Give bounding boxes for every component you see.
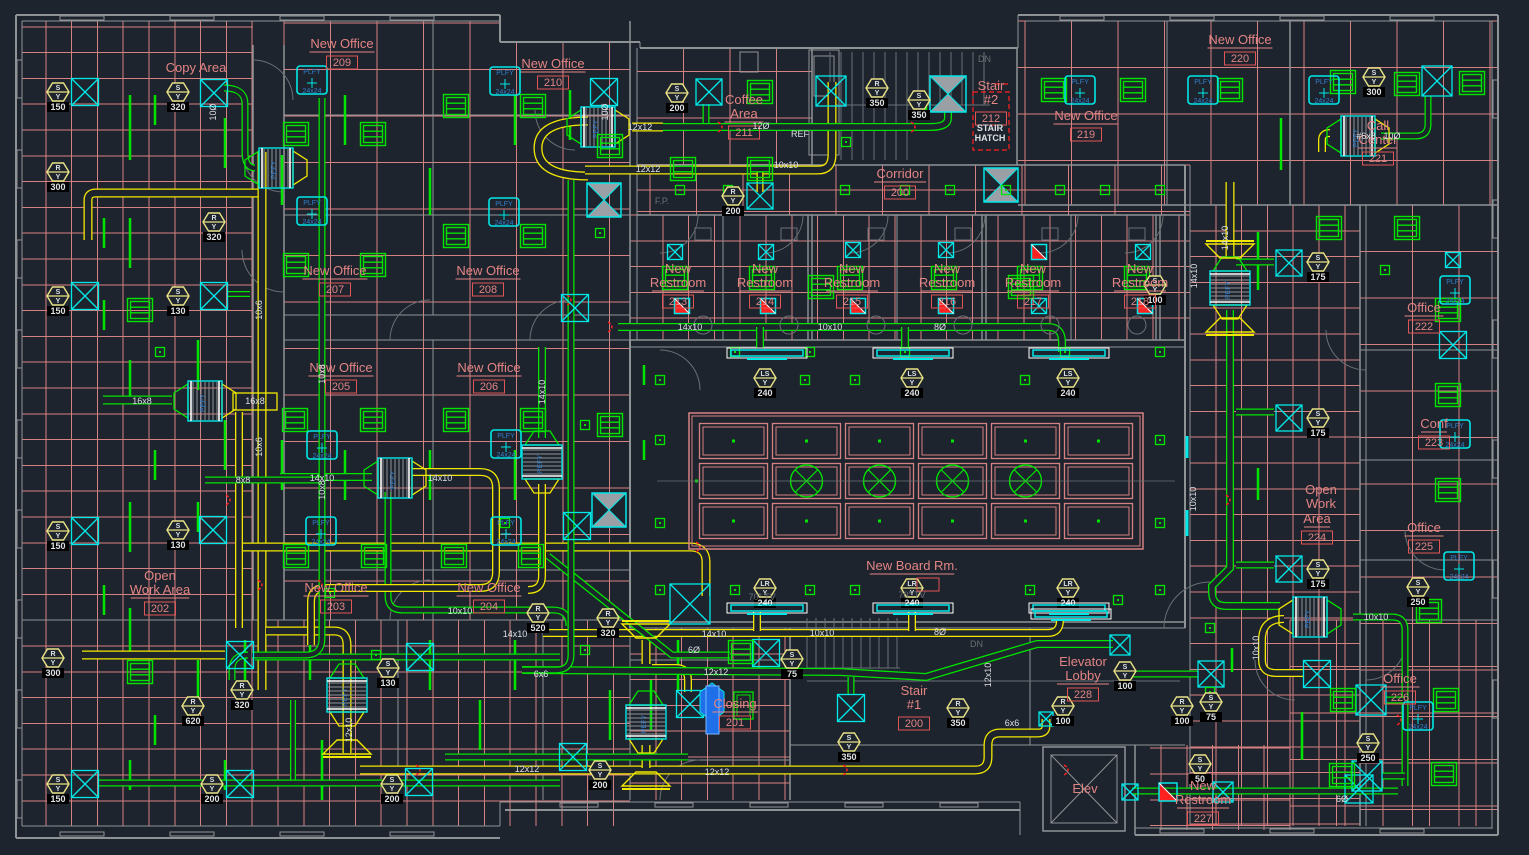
svg-text:14x10: 14x10 [678,322,703,332]
svg-text:LS: LS [908,371,917,378]
svg-text:24x24: 24x24 [1445,442,1464,449]
svg-text:New Office: New Office [310,36,373,51]
svg-text:75: 75 [787,669,797,679]
svg-text:S: S [1209,695,1214,702]
svg-text:200: 200 [384,794,399,804]
svg-text:Y: Y [956,710,961,717]
svg-text:Y: Y [1123,673,1128,680]
svg-text:New: New [839,261,866,276]
svg-text:8Ø: 8Ø [934,627,946,637]
svg-text:Y: Y [176,94,181,101]
svg-text:24x24: 24x24 [1445,298,1464,305]
svg-text:12x10: 12x10 [983,663,993,688]
svg-text:Open: Open [1305,482,1337,497]
svg-text:R: R [50,651,55,658]
svg-text:Y: Y [675,95,680,102]
svg-text:R: R [730,189,735,196]
svg-text:Y: Y [390,786,395,793]
svg-text:210: 210 [544,77,562,89]
svg-text:LR: LR [760,581,769,588]
svg-text:New Board Rm.: New Board Rm. [866,558,958,573]
svg-text:250: 250 [1360,753,1375,763]
svg-text:6Ø: 6Ø [688,645,700,655]
svg-text:New: New [1020,261,1047,276]
svg-text:PLFY: PLFY [1446,279,1464,286]
svg-text:Y: Y [606,620,611,627]
svg-text:24x24: 24x24 [311,539,330,546]
svg-text:12x12: 12x12 [515,764,540,774]
svg-text:10x6: 10x6 [254,300,264,320]
svg-text:New Office: New Office [457,360,520,375]
svg-text:S: S [1316,562,1321,569]
svg-text:New: New [934,261,961,276]
svg-text:216: 216 [938,296,956,308]
svg-text:Stair: Stair [901,683,928,698]
svg-text:Corridor: Corridor [877,166,925,181]
svg-text:200: 200 [905,718,923,730]
svg-text:14x10: 14x10 [428,473,453,483]
svg-text:New: New [752,261,779,276]
svg-text:Y: Y [56,533,61,540]
svg-text:Restroom: Restroom [1112,275,1168,290]
svg-text:#6x8: #6x8 [1356,131,1376,141]
svg-text:75: 75 [1206,712,1216,722]
svg-text:24x24: 24x24 [496,452,515,459]
svg-text:211: 211 [735,127,753,139]
svg-text:Restroom: Restroom [737,275,793,290]
svg-text:Y: Y [847,744,852,751]
svg-text:New: New [665,261,692,276]
svg-text:200: 200 [592,780,607,790]
svg-text:620: 620 [185,716,200,726]
svg-text:S: S [1416,580,1421,587]
svg-text:223: 223 [1425,437,1443,449]
svg-text:Y: Y [1061,708,1066,715]
svg-text:S: S [917,93,922,100]
svg-text:240: 240 [904,388,919,398]
svg-text:10Ø: 10Ø [600,103,610,120]
svg-text:10x6: 10x6 [254,437,264,457]
svg-text:S: S [1316,255,1321,262]
svg-text:206: 206 [480,381,498,393]
svg-text:10x10: 10x10 [1251,636,1261,661]
svg-text:Area: Area [730,106,758,121]
svg-text:Elev: Elev [1072,781,1098,796]
svg-text:S: S [790,652,795,659]
svg-text:Y: Y [56,298,61,305]
svg-text:Y: Y [1316,264,1321,271]
svg-text:PLFY: PLFY [1315,79,1333,86]
svg-text:Y: Y [731,198,736,205]
svg-text:24x24: 24x24 [494,220,513,227]
svg-text:203: 203 [327,601,345,613]
svg-text:320: 320 [234,700,249,710]
svg-text:LS: LS [761,371,770,378]
svg-text:R: R [211,215,216,222]
svg-text:12Ø: 12Ø [752,121,769,131]
svg-text:S: S [56,289,61,296]
svg-text:S: S [675,86,680,93]
svg-text:S: S [56,524,61,531]
svg-text:PLFY: PLFY [312,520,330,527]
svg-text:S: S [176,289,181,296]
svg-text:Coffee: Coffee [725,92,763,107]
svg-text:Y: Y [598,772,603,779]
svg-text:Y: Y [176,532,181,539]
svg-text:New Office: New Office [456,263,519,278]
svg-text:70″ TV: 70″ TV [748,592,775,602]
svg-text:R: R [239,683,244,690]
svg-text:LS: LS [1064,371,1073,378]
svg-text:24x24: 24x24 [302,219,321,226]
svg-text:Y: Y [191,708,196,715]
svg-text:PLFY: PLFY [496,70,514,77]
svg-text:PLFY: PLFY [497,433,515,440]
svg-text:24x24: 24x24 [312,453,331,460]
svg-text:New Office: New Office [1054,108,1117,123]
svg-text:LR: LR [907,581,916,588]
svg-text:24x24: 24x24 [496,539,515,546]
svg-text:R: R [535,606,540,613]
svg-text:12x12: 12x12 [636,164,661,174]
svg-text:Restroom: Restroom [650,275,706,290]
svg-text:320: 320 [170,102,185,112]
svg-text:205: 205 [332,381,350,393]
svg-text:New Office: New Office [304,580,367,595]
svg-text:DN: DN [978,54,991,64]
svg-text:300: 300 [1366,87,1381,97]
svg-text:PLFY: PLFY [303,69,321,76]
svg-text:PEFY: PEFY [200,394,207,413]
svg-text:350: 350 [869,98,884,108]
svg-text:REF: REF [791,129,810,139]
svg-text:PEFY: PEFY [641,715,648,734]
svg-text:100: 100 [1117,681,1132,691]
svg-text:Lobby: Lobby [1065,668,1101,683]
svg-text:14x10: 14x10 [1220,226,1230,251]
svg-text:220: 220 [1231,53,1249,65]
svg-text:130: 130 [170,540,185,550]
svg-text:209: 209 [333,57,351,69]
svg-text:6x6: 6x6 [1005,718,1020,728]
svg-text:PLFY: PLFY [1071,79,1089,86]
svg-text:PLFY: PLFY [1446,423,1464,430]
svg-text:10Ø: 10Ø [1383,131,1400,141]
svg-text:24x24: 24x24 [1408,724,1427,731]
svg-text:Y: Y [240,692,245,699]
svg-text:10x10: 10x10 [774,160,799,170]
svg-text:PEFY: PEFY [390,471,397,490]
svg-text:250: 250 [1410,597,1425,607]
svg-text:24x24: 24x24 [1449,574,1468,581]
svg-text:8Ø: 8Ø [934,322,946,332]
svg-text:175: 175 [1310,428,1325,438]
svg-text:Office: Office [1407,520,1441,535]
svg-text:Work Area: Work Area [130,582,191,597]
svg-text:R: R [1060,699,1065,706]
svg-text:R: R [874,81,879,88]
svg-text:16x8: 16x8 [245,396,265,406]
svg-text:PLFY: PLFY [1409,705,1427,712]
svg-text:Closing: Closing [713,696,756,711]
svg-text:12x10: 12x10 [344,718,354,743]
svg-text:R: R [190,699,195,706]
svg-text:175: 175 [1310,272,1325,282]
svg-text:Work: Work [1306,496,1337,511]
svg-text:R: R [605,611,610,618]
svg-text:Y: Y [212,224,217,231]
svg-text:Y: Y [1366,745,1371,752]
svg-text:10x10: 10x10 [1188,487,1198,512]
svg-text:224: 224 [1308,532,1326,544]
svg-text:10Ø: 10Ø [208,103,218,120]
svg-text:14x10: 14x10 [702,629,727,639]
svg-text:Elevator: Elevator [1059,654,1107,669]
svg-text:10x10: 10x10 [448,606,473,616]
svg-text:Y: Y [1198,766,1203,773]
svg-text:24x24: 24x24 [495,89,514,96]
svg-text:PLFY: PLFY [303,200,321,207]
svg-text:New Office: New Office [303,263,366,278]
svg-text:8x8: 8x8 [236,475,251,485]
svg-text:150: 150 [50,102,65,112]
svg-text:10x10: 10x10 [818,322,843,332]
svg-text:PEFY: PEFY [537,455,544,474]
svg-text:222: 222 [1415,321,1433,333]
svg-text:Y: Y [56,174,61,181]
svg-text:Open: Open [144,568,176,583]
svg-text:14x10: 14x10 [537,380,547,405]
svg-text:10x10: 10x10 [810,628,835,638]
svg-text:200: 200 [725,206,740,216]
svg-text:14x10: 14x10 [503,629,528,639]
svg-text:#1: #1 [907,697,921,712]
svg-text:225: 225 [1415,541,1433,553]
svg-text:520: 520 [530,623,545,633]
svg-text:New: New [1127,261,1154,276]
svg-text:213: 213 [669,296,687,308]
svg-text:24x24: 24x24 [302,88,321,95]
svg-text:F.P.: F.P. [655,196,669,206]
svg-text:PLFY: PLFY [1194,79,1212,86]
svg-text:6Ø: 6Ø [1336,794,1348,804]
svg-text:300: 300 [45,668,60,678]
svg-text:#2: #2 [984,92,998,107]
svg-text:S: S [386,661,391,668]
svg-text:14x10: 14x10 [1189,264,1199,289]
svg-text:214: 214 [756,296,774,308]
svg-text:S: S [1316,411,1321,418]
svg-text:S: S [176,523,181,530]
svg-text:208: 208 [479,284,497,296]
svg-text:S: S [1372,70,1377,77]
svg-text:PEFY: PEFY [1225,281,1232,300]
svg-text:PEFY: PEFY [271,161,278,180]
svg-text:Office: Office [1407,300,1441,315]
svg-text:S: S [56,85,61,92]
svg-text:New Office: New Office [1208,32,1271,47]
svg-text:215: 215 [843,296,861,308]
svg-text:S: S [56,777,61,784]
svg-text:Restroom: Restroom [1175,792,1231,807]
svg-text:PLFY: PLFY [497,520,515,527]
svg-text:Area: Area [1303,511,1331,526]
svg-text:12x12: 12x12 [705,767,730,777]
svg-text:240: 240 [757,388,772,398]
svg-text:228: 228 [1074,689,1092,701]
svg-text:R: R [1179,699,1184,706]
svg-text:Y: Y [386,670,391,677]
svg-text:PLFY: PLFY [495,201,513,208]
svg-text:10x8: 10x8 [317,364,327,384]
svg-text:Office: Office [1383,671,1417,686]
svg-text:200: 200 [891,187,909,199]
svg-text:S: S [598,763,603,770]
svg-text:10x8: 10x8 [317,480,327,500]
svg-text:S: S [1123,664,1128,671]
svg-text:S: S [390,777,395,784]
svg-text:350: 350 [841,752,856,762]
svg-text:Restroom: Restroom [824,275,880,290]
svg-text:Y: Y [1066,590,1071,597]
svg-text:Y: Y [51,660,56,667]
svg-text:12x12: 12x12 [628,122,653,132]
svg-text:Y: Y [1372,79,1377,86]
svg-text:Restroom: Restroom [919,275,975,290]
svg-text:150: 150 [50,541,65,551]
svg-text:PLFY: PLFY [313,434,331,441]
svg-text:Y: Y [56,786,61,793]
svg-text:320: 320 [206,232,221,242]
svg-text:S: S [847,735,852,742]
svg-text:Copy Area: Copy Area [166,60,227,75]
svg-text:150: 150 [50,306,65,316]
svg-text:Y: Y [536,615,541,622]
svg-text:Y: Y [763,380,768,387]
svg-text:240: 240 [1060,388,1075,398]
svg-text:226: 226 [1391,692,1409,704]
svg-text:PEFY: PEFY [1305,610,1312,629]
svg-text:HATCH: HATCH [975,133,1006,143]
svg-text:24x24: 24x24 [1070,98,1089,105]
svg-text:Y: Y [917,102,922,109]
svg-text:350: 350 [911,110,926,120]
svg-text:Y: Y [1209,704,1214,711]
svg-text:150: 150 [50,794,65,804]
svg-text:Y: Y [56,94,61,101]
svg-text:New Office: New Office [457,580,520,595]
svg-text:217: 217 [1024,296,1042,308]
svg-text:R: R [55,165,60,172]
svg-text:Y: Y [1316,571,1321,578]
svg-text:PEFY: PEFY [342,688,349,707]
svg-text:S: S [176,85,181,92]
svg-text:6x6: 6x6 [534,669,549,679]
svg-text:100: 100 [1174,716,1189,726]
svg-text:24x24: 24x24 [1314,98,1333,105]
svg-text:Restroom: Restroom [1005,275,1061,290]
svg-text:LR: LR [1063,581,1072,588]
svg-text:Y: Y [176,298,181,305]
svg-text:New: New [1190,778,1217,793]
svg-text:S: S [210,777,215,784]
svg-text:Stair: Stair [978,78,1005,93]
svg-text:Y: Y [875,90,880,97]
svg-text:227: 227 [1194,813,1212,825]
svg-text:Y: Y [210,786,215,793]
svg-text:Y: Y [1416,589,1421,596]
svg-text:100: 100 [1055,716,1070,726]
svg-text:207: 207 [326,284,344,296]
svg-text:70″ TV: 70″ TV [898,590,925,600]
svg-text:16x8: 16x8 [132,396,152,406]
svg-text:S: S [1366,736,1371,743]
svg-text:221: 221 [1369,153,1387,165]
svg-text:12x12: 12x12 [704,667,729,677]
svg-text:175: 175 [1310,579,1325,589]
svg-text:219: 219 [1077,129,1095,141]
svg-text:200: 200 [204,794,219,804]
svg-text:202: 202 [151,603,169,615]
svg-text:320: 320 [600,628,615,638]
svg-text:R: R [955,701,960,708]
svg-text:24x24: 24x24 [1193,98,1212,105]
svg-text:DN: DN [970,639,983,649]
svg-text:204: 204 [480,601,498,613]
svg-text:Y: Y [1066,380,1071,387]
svg-text:200: 200 [669,103,684,113]
svg-text:218: 218 [1131,296,1149,308]
svg-text:PEFY: PEFY [593,120,600,139]
svg-text:10x10: 10x10 [1364,612,1389,622]
svg-text:STAIR: STAIR [977,123,1004,133]
svg-text:Y: Y [1316,420,1321,427]
svg-text:PLFY: PLFY [1450,555,1468,562]
svg-text:Y: Y [910,380,915,387]
svg-text:Y: Y [790,661,795,668]
svg-text:Y: Y [1180,708,1185,715]
svg-text:130: 130 [170,306,185,316]
svg-text:Conf: Conf [1420,416,1448,431]
svg-text:S: S [1198,757,1203,764]
svg-text:300: 300 [50,182,65,192]
svg-text:130: 130 [380,678,395,688]
svg-text:New Office: New Office [521,56,584,71]
svg-text:201: 201 [726,717,744,729]
svg-text:350: 350 [950,718,965,728]
